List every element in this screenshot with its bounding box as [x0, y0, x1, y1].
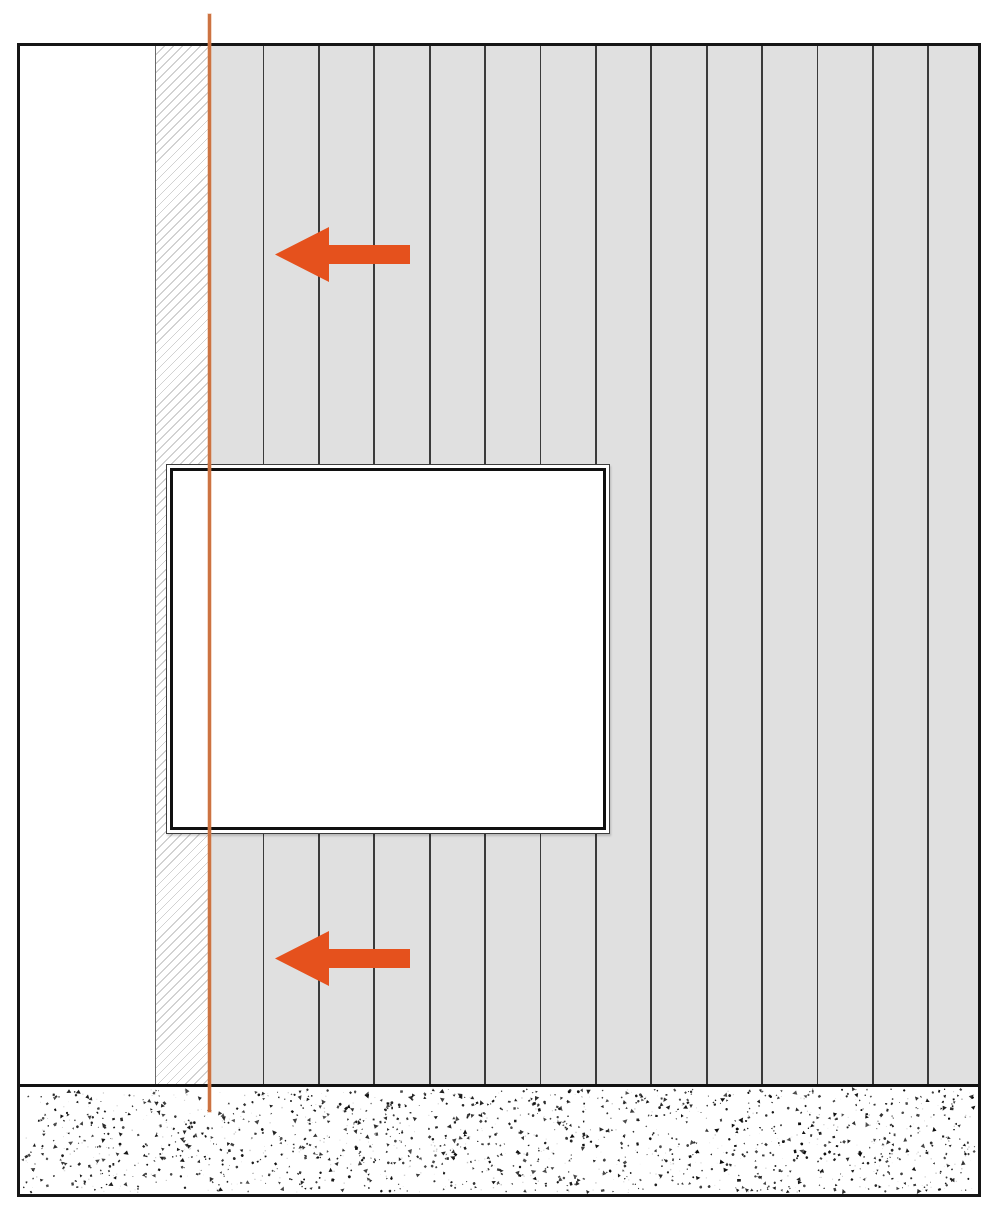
corner-wall-white — [20, 46, 155, 1084]
arrow-left-icon — [275, 227, 410, 282]
diagram-frame — [17, 43, 981, 1197]
work-direction-arrow-upper — [275, 227, 410, 282]
window-opening — [166, 464, 610, 834]
floor-screed-band — [20, 1084, 978, 1194]
diagram-canvas — [0, 0, 992, 1215]
window-inner-frame — [170, 468, 606, 830]
work-direction-arrow-lower — [275, 931, 410, 986]
plumb-line — [208, 14, 211, 1112]
arrow-left-icon — [275, 931, 410, 986]
speckle-canvas — [20, 1087, 978, 1194]
